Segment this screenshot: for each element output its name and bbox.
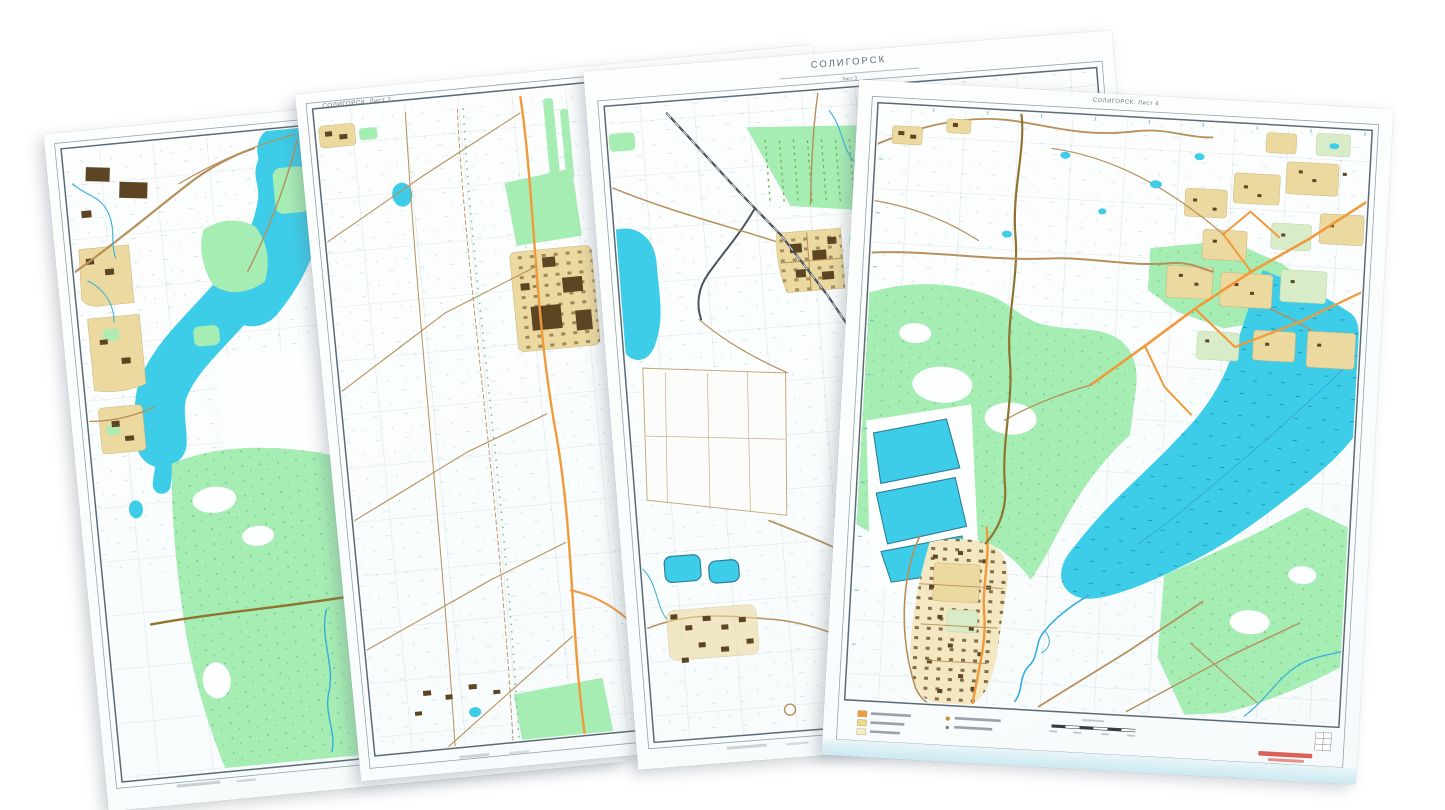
sheet-4-map-art — [822, 80, 1394, 785]
map-scans-scene: СОЛИГОРСК. Лист 2 — [0, 0, 1445, 810]
sheet-4-adjoining-sheets-diagram — [1315, 732, 1332, 751]
sheet-4-legend — [857, 711, 1001, 743]
watermark-logo — [1258, 751, 1312, 763]
map-sheet-4[interactable]: СОЛИГОРСК. Лист 4 — [822, 80, 1394, 785]
sheet-4-scale-bar — [1049, 717, 1136, 737]
scan-edge-strip — [822, 739, 1357, 785]
